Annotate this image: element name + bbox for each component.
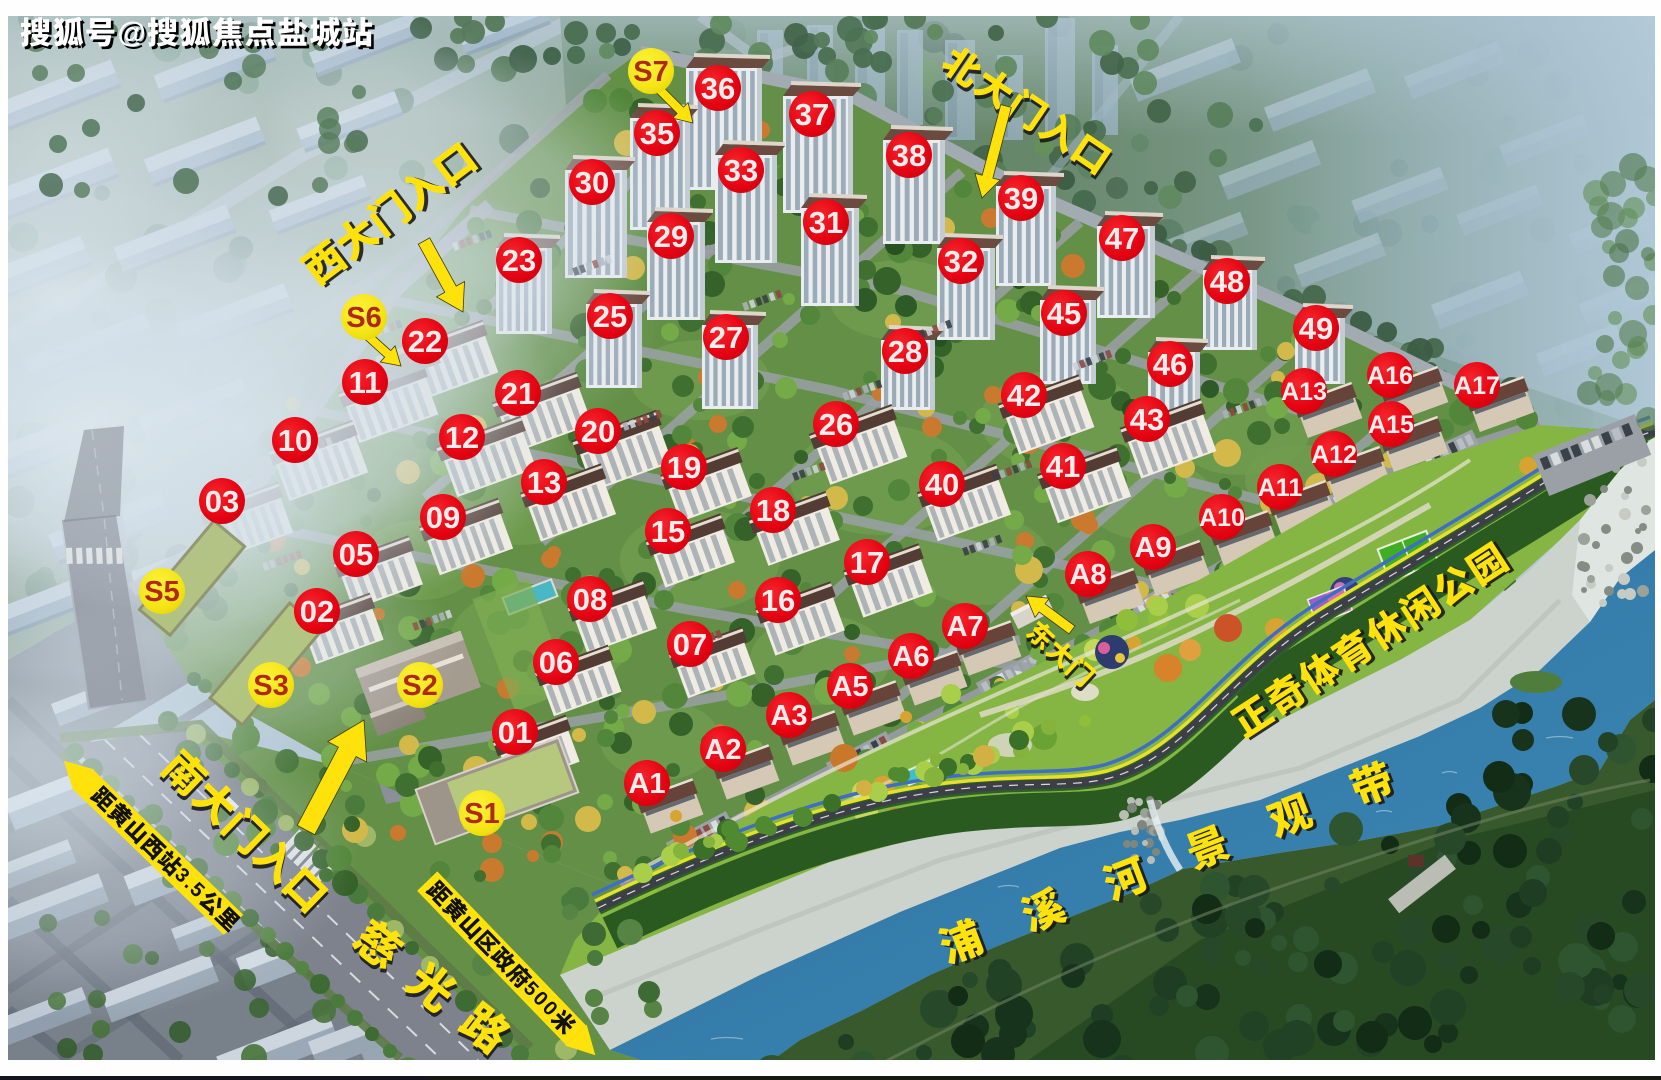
svg-text:22: 22 (408, 324, 442, 359)
svg-text:07: 07 (673, 627, 707, 662)
svg-text:39: 39 (1004, 181, 1038, 216)
svg-text:26: 26 (819, 407, 853, 442)
svg-text:30: 30 (575, 165, 609, 200)
svg-text:03: 03 (205, 484, 239, 519)
svg-text:45: 45 (1047, 296, 1081, 331)
svg-text:13: 13 (527, 465, 561, 500)
svg-text:38: 38 (892, 138, 926, 173)
svg-text:A8: A8 (1069, 559, 1106, 591)
svg-text:A16: A16 (1367, 362, 1413, 390)
svg-text:17: 17 (850, 545, 884, 580)
svg-text:28: 28 (888, 334, 922, 369)
svg-text:09: 09 (426, 500, 460, 535)
svg-text:S3: S3 (253, 670, 288, 702)
svg-text:A15: A15 (1368, 411, 1414, 439)
svg-text:A17: A17 (1454, 372, 1500, 400)
svg-text:37: 37 (795, 97, 829, 132)
svg-text:01: 01 (498, 715, 532, 750)
svg-text:33: 33 (724, 153, 758, 188)
svg-text:23: 23 (502, 243, 536, 278)
svg-text:A13: A13 (1281, 378, 1327, 406)
svg-text:47: 47 (1105, 221, 1139, 256)
svg-text:08: 08 (573, 582, 607, 617)
svg-text:12: 12 (445, 420, 479, 455)
svg-text:S7: S7 (633, 56, 668, 88)
svg-text:A11: A11 (1258, 474, 1303, 502)
svg-text:49: 49 (1299, 311, 1333, 346)
svg-text:29: 29 (654, 219, 688, 254)
svg-text:36: 36 (701, 71, 735, 106)
svg-text:20: 20 (581, 414, 615, 449)
svg-text:02: 02 (300, 594, 334, 629)
svg-text:A6: A6 (892, 641, 929, 673)
svg-text:A12: A12 (1311, 441, 1357, 469)
svg-text:S1: S1 (464, 798, 499, 830)
svg-text:A5: A5 (831, 671, 868, 703)
svg-text:42: 42 (1007, 378, 1041, 413)
svg-text:19: 19 (667, 450, 701, 485)
svg-text:46: 46 (1153, 347, 1187, 382)
svg-text:A7: A7 (946, 611, 983, 643)
svg-text:40: 40 (925, 467, 959, 502)
svg-text:A10: A10 (1199, 504, 1245, 532)
svg-text:05: 05 (339, 537, 373, 572)
svg-text:43: 43 (1130, 402, 1164, 437)
svg-text:48: 48 (1210, 264, 1244, 299)
svg-text:11: 11 (349, 365, 382, 400)
svg-text:06: 06 (539, 645, 573, 680)
svg-text:25: 25 (593, 299, 627, 334)
svg-text:10: 10 (278, 423, 312, 458)
svg-text:27: 27 (709, 320, 743, 355)
svg-text:S2: S2 (402, 670, 437, 702)
svg-text:18: 18 (756, 493, 790, 528)
svg-text:A9: A9 (1134, 532, 1171, 564)
svg-text:31: 31 (809, 205, 843, 240)
svg-text:S6: S6 (346, 302, 381, 334)
svg-text:A1: A1 (628, 768, 665, 800)
svg-text:41: 41 (1046, 449, 1080, 484)
svg-text:35: 35 (640, 116, 674, 151)
svg-text:32: 32 (944, 244, 978, 279)
svg-text:15: 15 (651, 514, 685, 549)
svg-text:16: 16 (761, 583, 795, 618)
svg-text:A3: A3 (770, 700, 807, 732)
svg-text:S5: S5 (144, 576, 179, 608)
svg-text:A2: A2 (704, 734, 741, 766)
svg-text:21: 21 (501, 376, 535, 411)
svg-text:@: @ (118, 17, 146, 49)
